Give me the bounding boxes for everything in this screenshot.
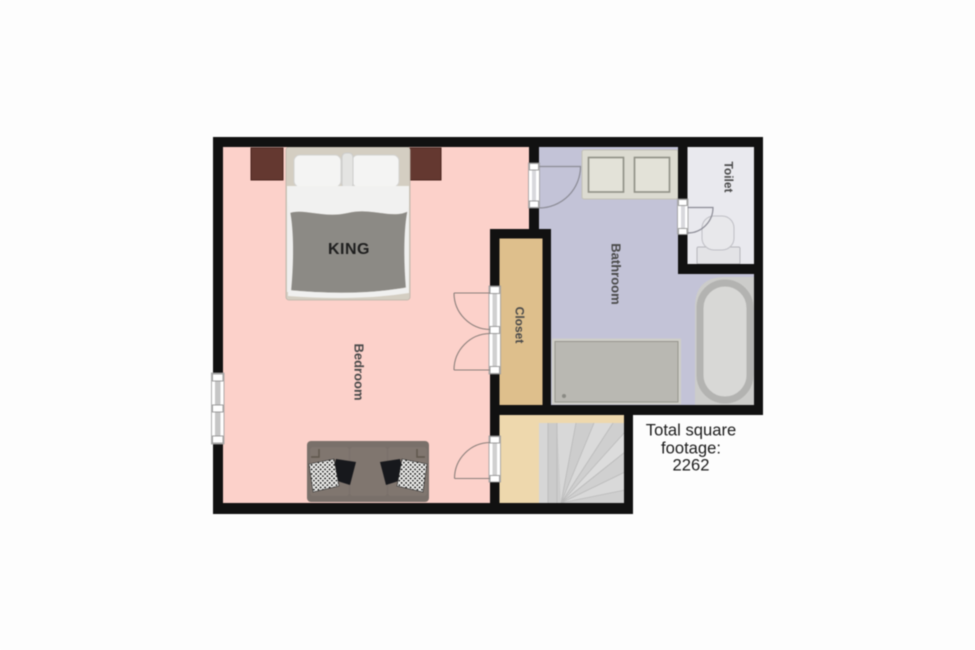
svg-text:Total square: Total square — [646, 421, 736, 440]
svg-text:Toilet: Toilet — [721, 161, 735, 192]
svg-text:Closet: Closet — [512, 307, 526, 344]
svg-text:Bedroom: Bedroom — [352, 343, 367, 400]
svg-text:Bathroom: Bathroom — [609, 243, 624, 304]
svg-text:KING: KING — [328, 241, 370, 258]
svg-text:2262: 2262 — [673, 456, 710, 475]
